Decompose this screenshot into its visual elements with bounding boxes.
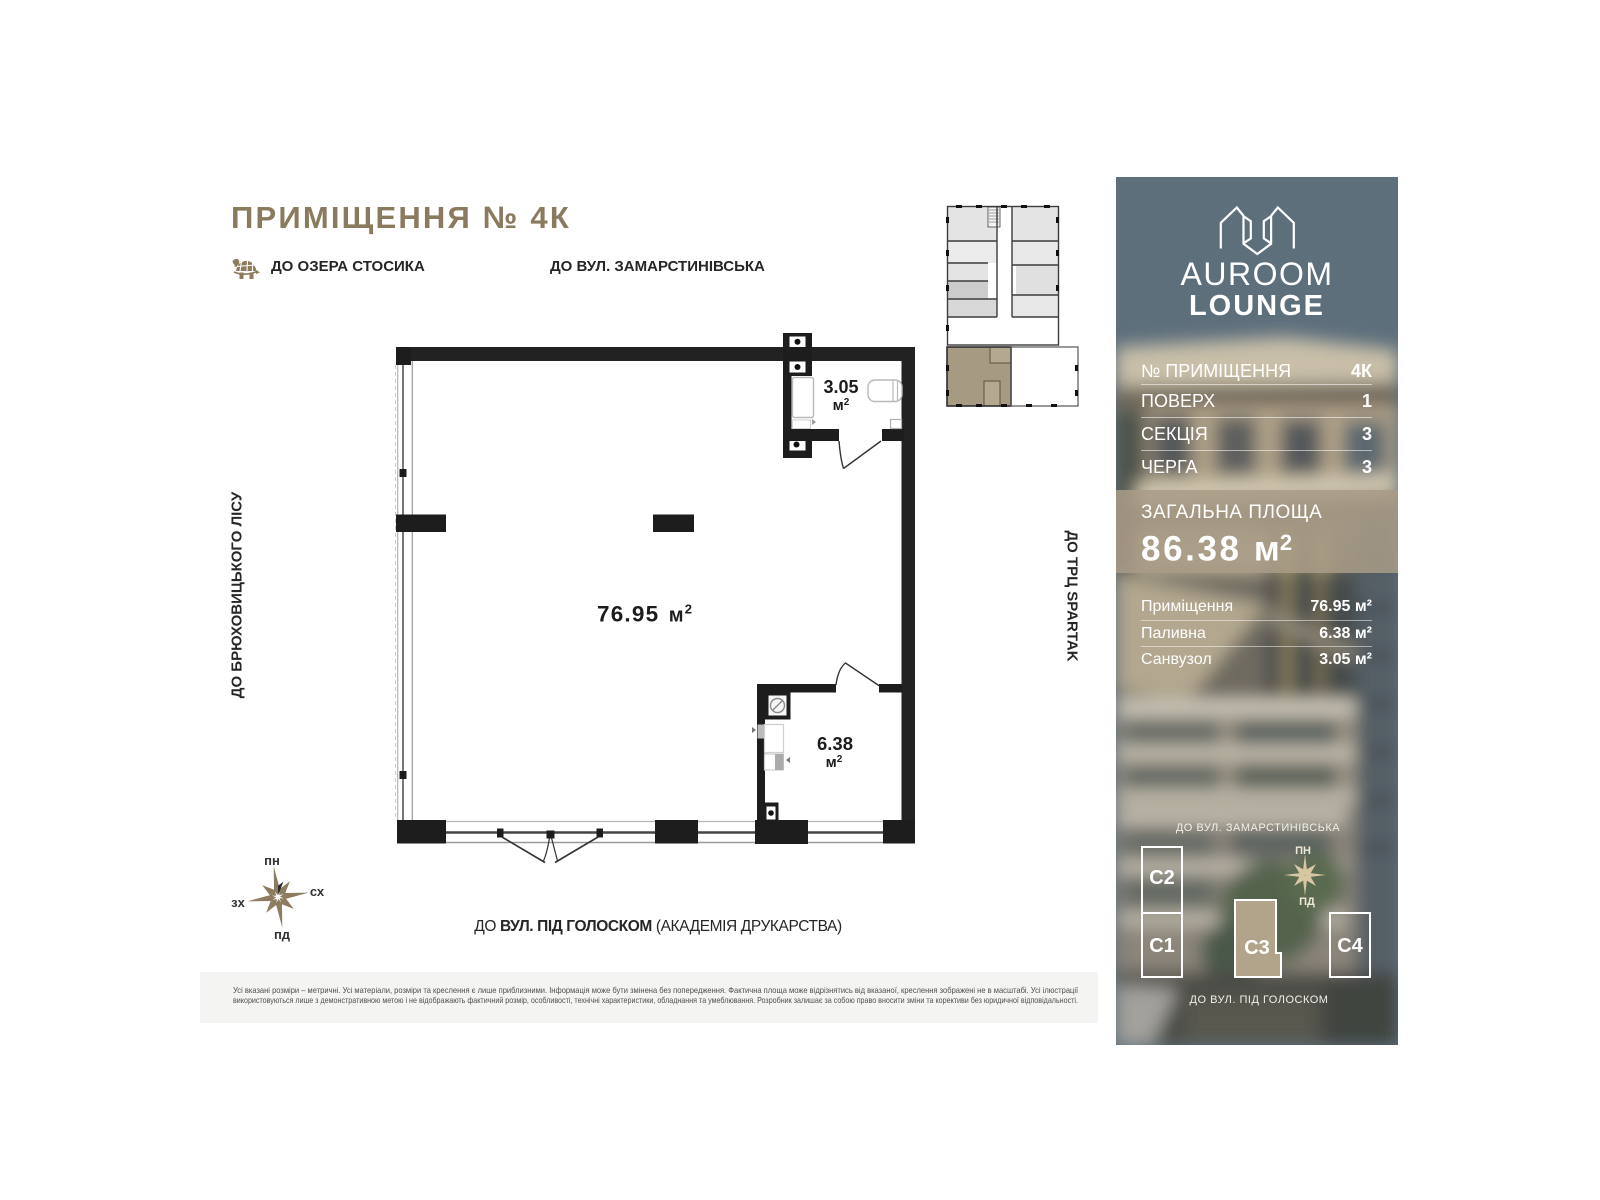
svg-text:зх: зх [231, 895, 245, 910]
svg-text:м2: м2 [833, 397, 850, 414]
svg-text:сх: сх [310, 884, 325, 899]
svg-text:С1: С1 [1149, 935, 1175, 957]
svg-text:3.05: 3.05 [823, 377, 858, 397]
svg-text:пн: пн [264, 853, 280, 868]
svg-text:пд: пд [274, 927, 291, 942]
svg-text:ДО ВУЛ. ЗАМАРСТИНІВСЬКА: ДО ВУЛ. ЗАМАРСТИНІВСЬКА [1176, 822, 1340, 834]
svg-text:6.38: 6.38 [817, 733, 853, 754]
svg-text:76.95 м2: 76.95 м2 [597, 602, 693, 627]
svg-text:м2: м2 [826, 754, 843, 771]
svg-text:С4: С4 [1337, 935, 1363, 957]
svg-text:С3: С3 [1244, 937, 1270, 959]
svg-text:ПД: ПД [1299, 896, 1315, 908]
svg-text:С2: С2 [1149, 867, 1175, 889]
svg-text:ДО ВУЛ. ПІД ГОЛОСКОМ: ДО ВУЛ. ПІД ГОЛОСКОМ [1190, 994, 1329, 1006]
svg-text:ПН: ПН [1295, 845, 1311, 857]
